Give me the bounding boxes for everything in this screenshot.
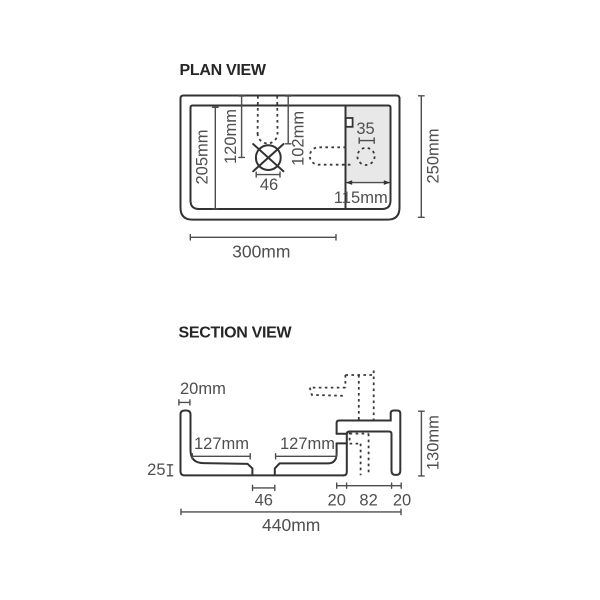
svg-text:25: 25: [147, 461, 165, 479]
svg-text:250mm: 250mm: [425, 128, 443, 183]
svg-text:440mm: 440mm: [262, 515, 320, 535]
svg-text:205mm: 205mm: [194, 129, 212, 184]
svg-text:300mm: 300mm: [232, 242, 290, 262]
svg-text:120mm: 120mm: [222, 109, 240, 164]
svg-text:20: 20: [328, 491, 346, 509]
svg-text:46: 46: [260, 176, 278, 194]
svg-text:102mm: 102mm: [290, 111, 308, 166]
svg-text:35: 35: [356, 120, 374, 138]
svg-text:20mm: 20mm: [180, 380, 226, 398]
svg-text:SECTION VIEW: SECTION VIEW: [179, 325, 293, 342]
svg-text:115mm: 115mm: [334, 189, 388, 207]
svg-text:127mm: 127mm: [280, 435, 335, 453]
svg-text:PLAN VIEW: PLAN VIEW: [180, 62, 267, 79]
svg-text:130mm: 130mm: [424, 415, 442, 470]
svg-text:82: 82: [359, 491, 377, 509]
svg-text:46: 46: [255, 492, 273, 510]
svg-text:20: 20: [393, 491, 411, 509]
svg-text:127mm: 127mm: [194, 435, 249, 453]
